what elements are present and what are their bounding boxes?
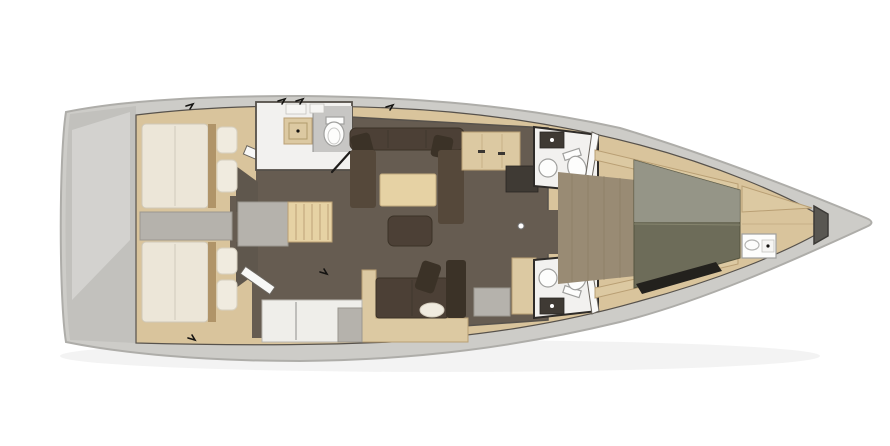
round-sink bbox=[539, 269, 557, 287]
faucet-dot bbox=[296, 129, 299, 132]
forward-cabin-floor bbox=[558, 172, 636, 284]
pillow bbox=[217, 248, 237, 274]
nav-desk bbox=[474, 288, 510, 316]
white-pillow bbox=[420, 303, 444, 317]
aft-head bbox=[256, 102, 352, 172]
engine-box bbox=[238, 202, 288, 246]
door-knob bbox=[518, 223, 524, 229]
hatch-handle bbox=[766, 244, 769, 247]
cabinet-dot bbox=[550, 304, 554, 308]
sofa-left-seat bbox=[350, 150, 376, 208]
pillow bbox=[217, 127, 237, 153]
round-sink bbox=[539, 159, 557, 177]
cabinet-handle bbox=[478, 150, 485, 153]
bed-headboard bbox=[208, 242, 216, 322]
toiletry-shelf bbox=[310, 104, 324, 113]
ottoman bbox=[388, 216, 432, 246]
aft-cabin-port bbox=[140, 124, 237, 240]
galley-counter-top bbox=[462, 132, 520, 170]
cabinet-handle bbox=[498, 152, 505, 155]
salon-table bbox=[380, 174, 436, 206]
yacht-floor-plan bbox=[0, 0, 890, 446]
toiletry-shelf bbox=[286, 104, 306, 114]
toilet bbox=[324, 122, 344, 146]
aft-cabin-starboard bbox=[142, 242, 237, 322]
cabinet-dot bbox=[550, 138, 554, 142]
settee-back bbox=[446, 260, 466, 318]
companionway-steps bbox=[288, 202, 332, 242]
canvas bbox=[0, 0, 890, 446]
nav-counter bbox=[512, 258, 536, 314]
galley-cabinet-gray bbox=[338, 308, 362, 342]
sofa-right-seat bbox=[438, 150, 464, 224]
cabin-bench bbox=[140, 212, 232, 240]
bed-headboard bbox=[208, 124, 216, 208]
pillow bbox=[217, 280, 237, 310]
pillow bbox=[217, 160, 237, 192]
